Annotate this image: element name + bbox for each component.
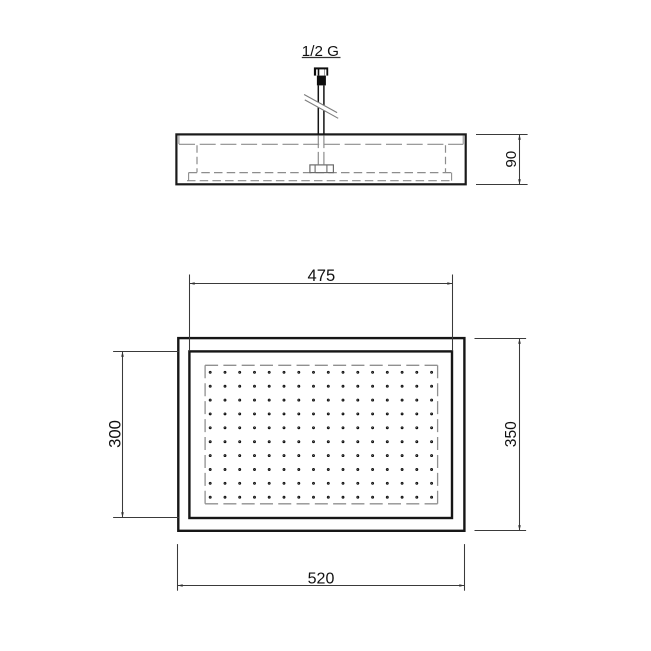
svg-text:90: 90 <box>503 151 520 168</box>
svg-text:520: 520 <box>308 570 335 587</box>
svg-text:300: 300 <box>106 420 125 448</box>
svg-text:350: 350 <box>503 421 520 447</box>
svg-text:475: 475 <box>308 266 336 285</box>
